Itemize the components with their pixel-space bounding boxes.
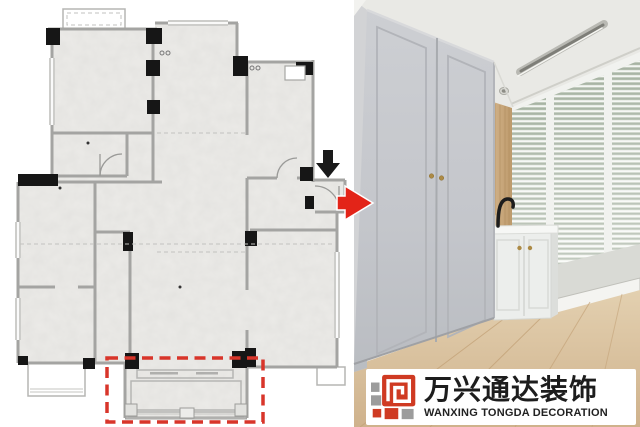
- cabinet-knob-icon: [517, 246, 521, 250]
- brand-text-block: 万兴通达装饰 WANXING TONGDA DECORATION: [424, 375, 608, 418]
- brand-watermark: 万兴通达装饰 WANXING TONGDA DECORATION: [366, 369, 636, 425]
- brand-logo-icon: [371, 373, 417, 421]
- brand-name-cn: 万兴通达装饰: [424, 375, 608, 404]
- wardrobe-door-gap: [436, 38, 437, 342]
- screenshot-root: 万兴通达装饰 WANXING TONGDA DECORATION: [0, 0, 640, 427]
- wardrobe-knob-icon: [429, 174, 434, 179]
- wardrobe-knob-icon: [439, 176, 444, 181]
- collage: [0, 0, 640, 427]
- floor-plan: [10, 5, 354, 425]
- interior-photo: [354, 0, 640, 427]
- cabinet-knob-icon: [528, 246, 532, 250]
- brand-name-en: WANXING TONGDA DECORATION: [424, 407, 608, 419]
- down-arrow-icon: [316, 150, 340, 178]
